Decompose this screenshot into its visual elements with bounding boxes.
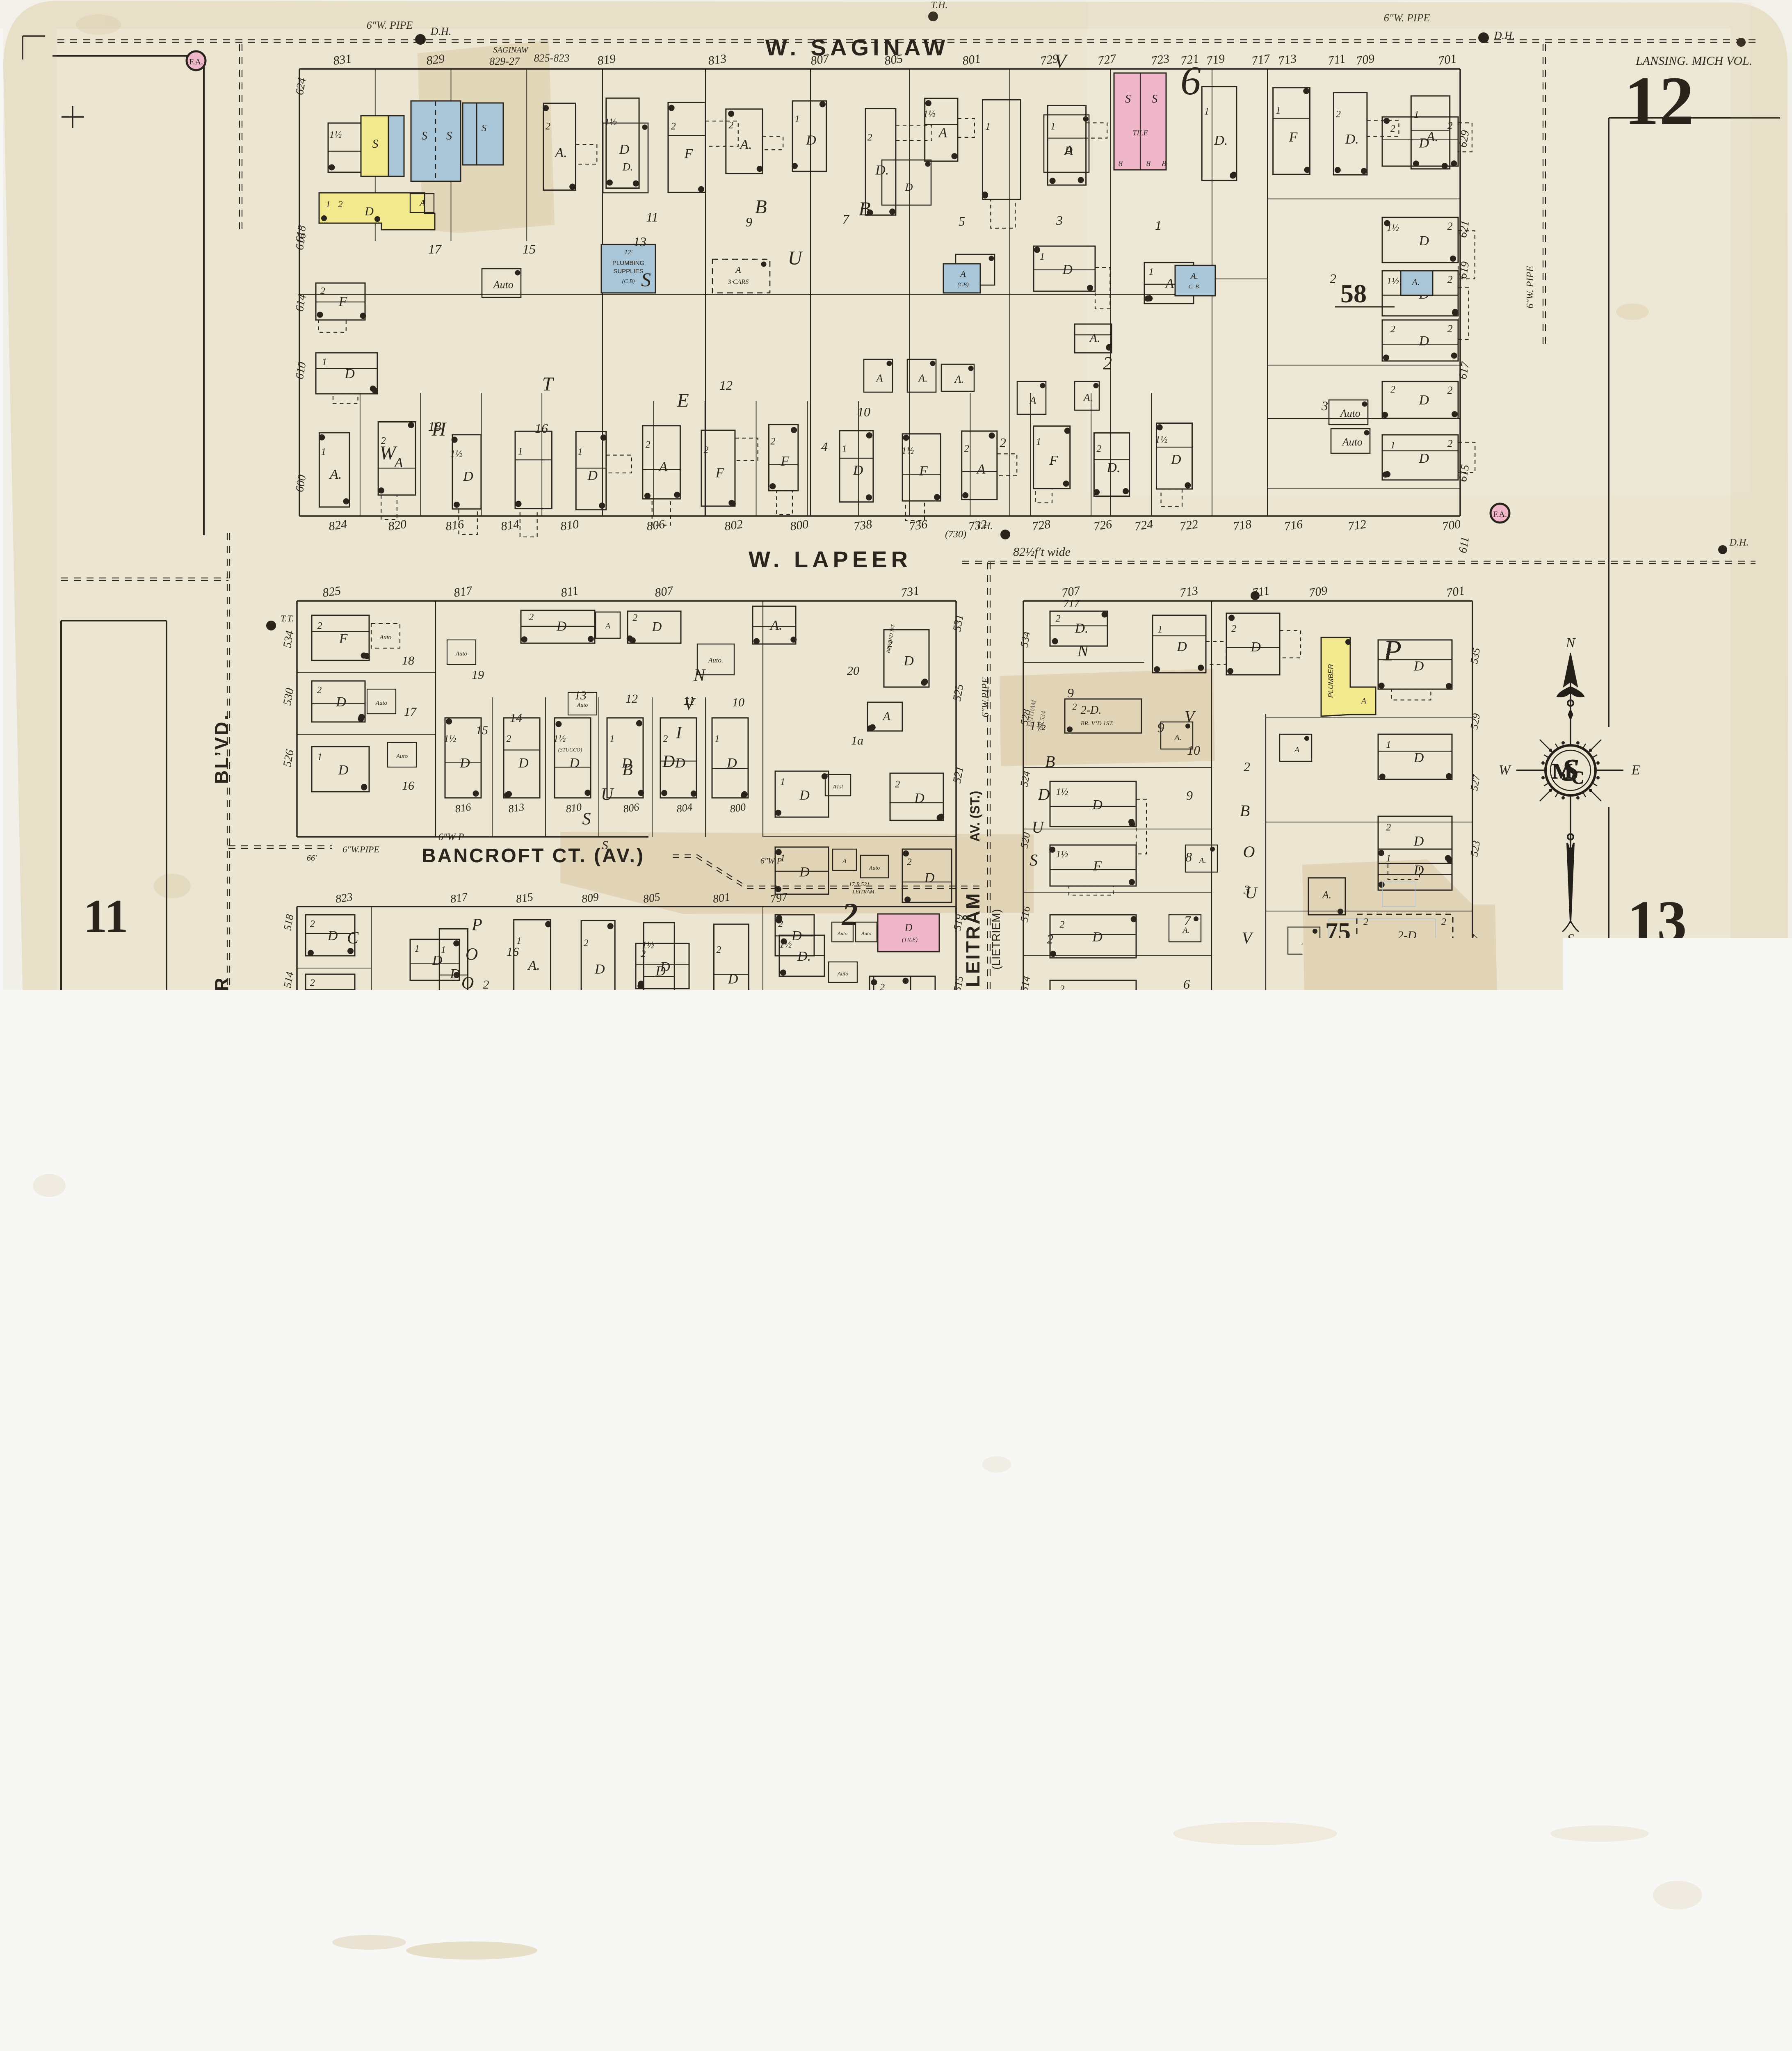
svg-text:2: 2: [1244, 759, 1250, 774]
svg-text:D: D: [1413, 658, 1424, 674]
svg-text:GENESEE ST. SCHOOL: GENESEE ST. SCHOOL: [342, 1391, 481, 1404]
svg-text:1: 1: [1157, 624, 1162, 635]
svg-text:722: 722: [1179, 517, 1199, 533]
svg-text:F: F: [684, 146, 694, 162]
svg-text:D: D: [675, 756, 685, 771]
svg-text:2: 2: [1159, 1932, 1164, 1943]
svg-text:2: 2: [310, 978, 315, 989]
svg-text:Auto: Auto: [493, 279, 514, 291]
svg-text:2: 2: [646, 439, 651, 450]
svg-text:N: N: [1343, 1864, 1356, 1883]
svg-text:N: N: [988, 1681, 1001, 1700]
svg-text:800: 800: [761, 1232, 780, 1247]
svg-text:&: &: [582, 1590, 596, 1609]
svg-text:D: D: [327, 1098, 338, 1113]
svg-text:10: 10: [1187, 743, 1200, 758]
svg-text:6: 6: [1350, 1161, 1357, 1176]
svg-text:D: D: [1413, 1058, 1424, 1073]
svg-text:T: T: [542, 373, 555, 395]
svg-text:2: 2: [1390, 324, 1395, 335]
svg-text:Auto: Auto: [375, 700, 388, 706]
svg-text:28: 28: [356, 1427, 366, 1439]
svg-text:P: P: [471, 916, 482, 934]
svg-text:2: 2: [1316, 1463, 1321, 1474]
svg-text:823: 823: [404, 1352, 423, 1367]
svg-text:D: D: [1418, 393, 1429, 408]
svg-text:2: 2: [895, 779, 900, 790]
svg-text:D: D: [1038, 785, 1050, 804]
svg-text:LEITRAM: LEITRAM: [852, 888, 875, 895]
svg-text:D I: D I: [928, 1413, 952, 1432]
svg-text:D: D: [1413, 1156, 1424, 1171]
svg-text:1½: 1½: [1161, 1521, 1173, 1531]
svg-text:Auto: Auto: [379, 634, 392, 641]
svg-text:2: 2: [1386, 1147, 1391, 1158]
svg-text:813: 813: [507, 801, 525, 815]
svg-text:9: 9: [746, 215, 752, 229]
svg-text:8: 8: [533, 1569, 542, 1588]
svg-text:2: 2: [308, 1772, 313, 1782]
svg-text:L: L: [840, 1550, 849, 1569]
svg-text:2: 2: [632, 612, 637, 623]
svg-text:D: D: [1413, 750, 1424, 765]
svg-text:1: 1: [1028, 1934, 1033, 1945]
svg-text:1: 1: [317, 752, 322, 763]
svg-text:V: V: [954, 1694, 967, 1713]
svg-text:701: 701: [1434, 1352, 1453, 1367]
svg-text:D: D: [569, 756, 580, 771]
svg-text:6″W. PIPE: 6″W. PIPE: [331, 1283, 370, 1293]
svg-text:A1st: A1st: [833, 784, 844, 790]
svg-text:A: A: [1330, 1471, 1340, 1487]
svg-text:2: 2: [1373, 1725, 1378, 1736]
svg-text:35′: 35′: [380, 1427, 392, 1438]
svg-text:A.: A.: [954, 373, 964, 385]
svg-text:A.: A.: [1374, 1464, 1381, 1473]
svg-text:D: D: [1401, 1406, 1409, 1418]
svg-text:D: D: [556, 619, 566, 634]
svg-text:B: B: [1240, 802, 1250, 820]
svg-text:1: 1: [1149, 267, 1154, 277]
svg-text:75: 75: [1325, 918, 1351, 946]
svg-text:P: P: [1383, 634, 1402, 667]
svg-text:2: 2: [1059, 920, 1064, 930]
svg-text:6″W. PIPE: 6″W. PIPE: [313, 2009, 360, 2021]
svg-text:I: I: [760, 1560, 767, 1579]
svg-text:713: 713: [1212, 1352, 1231, 1367]
svg-text:E: E: [925, 1150, 936, 1169]
svg-text:D: D: [1171, 452, 1181, 467]
svg-text:A: A: [792, 1192, 802, 1207]
svg-text:2: 2: [1047, 932, 1053, 946]
svg-text:2: 2: [317, 621, 322, 631]
svg-text:50: 50: [375, 1316, 384, 1326]
svg-text:H: H: [431, 418, 447, 440]
svg-text:2: 2: [1447, 438, 1453, 450]
svg-text:1½: 1½: [491, 1193, 503, 1204]
svg-text:2: 2: [304, 1935, 309, 1946]
svg-text:(STUCCO): (STUCCO): [558, 747, 582, 753]
svg-text:1: 1: [1390, 1847, 1395, 1858]
svg-text:1: 1: [780, 777, 785, 788]
svg-text:728: 728: [1031, 517, 1051, 533]
svg-text:VEN’D: VEN’D: [1165, 1396, 1182, 1402]
svg-text:2: 2: [1056, 614, 1061, 624]
svg-text:11: 11: [330, 1427, 339, 1438]
svg-text:6: 6: [834, 1597, 840, 1611]
svg-text:A.: A.: [1301, 938, 1308, 947]
svg-text:Auto: Auto: [1231, 1172, 1247, 1181]
svg-text:1: 1: [795, 114, 800, 124]
svg-text:( P U B L I C ): ( P U B L I C ): [383, 1407, 436, 1416]
svg-text:1½: 1½: [303, 1828, 315, 1839]
svg-text:1: 1: [372, 1917, 377, 1928]
svg-text:S: S: [482, 123, 486, 134]
svg-text:806: 806: [622, 801, 640, 815]
svg-text:A.: A.: [959, 1955, 972, 1970]
svg-text:D.: D.: [1345, 132, 1359, 147]
svg-text:2: 2: [880, 982, 885, 993]
svg-text:A: A: [876, 372, 883, 384]
svg-text:A: A: [1361, 697, 1367, 706]
svg-text:A: A: [817, 1044, 823, 1053]
svg-text:D: D: [1418, 333, 1429, 349]
svg-text:D: D: [1407, 1627, 1415, 1639]
svg-text:2: 2: [1447, 274, 1453, 285]
svg-text:17: 17: [428, 242, 442, 256]
svg-text:804: 804: [676, 801, 693, 815]
svg-text:2: 2: [1246, 1386, 1251, 1397]
svg-text:2: 2: [649, 1370, 655, 1383]
svg-text:D.: D.: [439, 1201, 453, 1216]
svg-text:2: 2: [483, 978, 489, 991]
svg-text:12: 12: [1624, 62, 1694, 139]
svg-text:1½: 1½: [306, 1035, 319, 1046]
svg-text:T.H.: T.H.: [277, 1231, 293, 1242]
svg-text:1: 1: [911, 1433, 919, 1452]
svg-text:D: D: [1062, 262, 1073, 277]
svg-text:2: 2: [1059, 1107, 1064, 1118]
svg-text:S: S: [422, 130, 427, 142]
svg-text:6″W P: 6″W P: [760, 856, 782, 866]
svg-text:A: A: [530, 1060, 536, 1069]
svg-text:3 CARS: 3 CARS: [914, 1551, 934, 1557]
svg-text:D: D: [902, 994, 913, 1009]
svg-text:2: 2: [1447, 220, 1453, 232]
svg-text:U: U: [788, 247, 804, 269]
svg-text:3-CARS: 3-CARS: [1221, 1074, 1242, 1080]
svg-text:2: 2: [875, 1928, 880, 1938]
svg-text:E: E: [1631, 763, 1640, 778]
svg-text:D: D: [327, 928, 338, 943]
svg-text:F: F: [919, 464, 928, 479]
svg-text:66′: 66′: [307, 854, 317, 863]
svg-text:D.: D.: [820, 1948, 833, 1963]
svg-text:D: D: [336, 694, 346, 710]
svg-text:806: 806: [620, 1756, 635, 1766]
svg-text:12′: 12′: [624, 249, 632, 256]
svg-text:13: 13: [1628, 889, 1687, 955]
svg-text:13: 13: [633, 234, 646, 249]
svg-text:A: A: [464, 1023, 470, 1032]
svg-text:800: 800: [789, 517, 809, 533]
svg-text:A: A: [1013, 1624, 1019, 1633]
svg-text:PLUMBER: PLUMBER: [1327, 664, 1335, 698]
svg-text:A.: A.: [885, 987, 898, 1003]
svg-text:2: 2: [320, 286, 325, 297]
svg-text:D: D: [327, 1044, 338, 1059]
svg-text:1: 1: [1155, 218, 1162, 233]
svg-text:730: 730: [888, 2007, 907, 2022]
svg-text:A: A: [938, 126, 947, 141]
svg-text:D: D: [327, 1147, 338, 1163]
svg-text:715½: 715½: [1172, 1499, 1191, 1508]
svg-text:S: S: [705, 1789, 714, 1808]
svg-text:Auto: Auto: [1065, 1790, 1080, 1798]
svg-text:S: S: [379, 1212, 384, 1222]
svg-text:(CB): (CB): [957, 282, 969, 288]
svg-text:F: F: [667, 1935, 677, 1950]
svg-text:10: 10: [857, 404, 870, 419]
svg-text:G: G: [484, 1584, 496, 1603]
svg-text:D: D: [1413, 863, 1424, 878]
svg-text:F: F: [524, 1942, 534, 1957]
svg-text:D.: D.: [882, 1429, 896, 1444]
svg-text:1: 1: [1210, 1399, 1214, 1410]
svg-text:(VEND): (VEND): [385, 1894, 406, 1901]
svg-text:804: 804: [671, 1232, 690, 1247]
svg-text:WALLS: WALLS: [1367, 1638, 1385, 1644]
svg-text:825-823: 825-823: [534, 52, 570, 64]
svg-text:(TILE BR. FACED): (TILE BR. FACED): [309, 1219, 360, 1226]
svg-text:810: 810: [565, 801, 582, 815]
svg-text:F: F: [387, 1937, 397, 1953]
svg-text:800: 800: [729, 801, 746, 815]
svg-text:2: 2: [1351, 1610, 1356, 1620]
svg-text:2: 2: [1039, 1396, 1044, 1406]
svg-text:S: S: [641, 269, 651, 291]
svg-text:1: 1: [1386, 853, 1391, 864]
svg-text:D: D: [916, 1195, 927, 1210]
svg-text:11: 11: [646, 210, 658, 224]
svg-text:1: 1: [656, 1919, 661, 1930]
svg-text:8: 8: [1185, 850, 1192, 864]
svg-text:D: D: [737, 1201, 748, 1217]
svg-text:819: 819: [596, 52, 616, 68]
svg-text:1 A: 1 A: [1342, 1705, 1361, 1720]
svg-text:A.: A.: [918, 372, 927, 384]
svg-text:736: 736: [749, 2007, 768, 2022]
svg-text:S: S: [446, 130, 452, 142]
svg-text:A.: A.: [1089, 331, 1100, 345]
svg-text:17 R.521: 17 R.521: [849, 882, 870, 888]
svg-text:A.: A.: [329, 467, 342, 482]
svg-text:2: 2: [1311, 1384, 1316, 1394]
svg-text:6″W.PIPE: 6″W.PIPE: [980, 677, 991, 717]
svg-text:2: 2: [728, 120, 733, 131]
svg-text:A: A: [605, 621, 611, 630]
svg-text:2: 2: [512, 1791, 518, 1803]
svg-text:D: D: [1416, 1952, 1427, 1967]
svg-text:E: E: [798, 1556, 809, 1575]
svg-text:820: 820: [387, 517, 407, 533]
svg-text:2: 2: [1073, 701, 1077, 712]
svg-text:816: 816: [445, 517, 465, 533]
svg-text:6″W. PIPE: 6″W. PIPE: [1511, 1915, 1522, 1957]
svg-text:1: 1: [1036, 436, 1041, 447]
svg-text:D: D: [728, 971, 738, 987]
svg-text:B: B: [622, 761, 633, 779]
svg-text:2: 2: [1390, 384, 1395, 395]
svg-text:E: E: [512, 1572, 523, 1591]
svg-text:1½: 1½: [1386, 1780, 1399, 1791]
svg-text:717: 717: [1251, 52, 1272, 68]
svg-text:9: 9: [1186, 788, 1193, 803]
svg-text:2: 2: [1447, 323, 1453, 335]
svg-text:D: D: [660, 959, 670, 975]
svg-text:BL’VD.: BL’VD.: [211, 713, 232, 784]
svg-text:N: N: [1077, 642, 1089, 660]
svg-text:715½R.: 715½R.: [1173, 1601, 1196, 1609]
svg-text:807: 807: [810, 52, 831, 68]
svg-text:700: 700: [1446, 1189, 1465, 1204]
svg-text:802: 802: [724, 1232, 743, 1247]
svg-text:711: 711: [1327, 52, 1346, 68]
svg-text:A: A: [592, 1864, 604, 1883]
svg-text:2: 2: [783, 1181, 788, 1192]
svg-text:D: D: [771, 1715, 782, 1731]
svg-text:A: A: [788, 1423, 798, 1439]
svg-text:714: 714: [1204, 1189, 1223, 1204]
svg-text:801: 801: [712, 891, 731, 906]
svg-text:U: U: [1003, 1421, 1016, 1440]
svg-text:F: F: [1289, 130, 1298, 145]
svg-text:1: 1: [840, 1159, 845, 1169]
svg-text:4: 4: [1244, 989, 1250, 1004]
svg-text:Auto: Auto: [1340, 407, 1361, 419]
svg-text:100: 100: [608, 1316, 622, 1326]
svg-text:8: 8: [1119, 159, 1123, 168]
svg-text:2: 2: [1187, 1712, 1193, 1726]
svg-text:D: D: [307, 1610, 316, 1624]
svg-text:7: 7: [842, 212, 850, 226]
svg-text:16: 16: [507, 945, 519, 959]
svg-text:D: D: [364, 205, 374, 218]
svg-text:2: 2: [867, 132, 872, 143]
svg-text:2: 2: [1386, 822, 1391, 833]
svg-text:Auto: Auto: [1117, 1787, 1130, 1794]
svg-text:S: S: [911, 1093, 919, 1112]
svg-text:S: S: [777, 1761, 786, 1780]
svg-text:15: 15: [609, 994, 621, 1008]
svg-text:F: F: [1399, 1737, 1409, 1752]
svg-text:1: 1: [1390, 440, 1395, 451]
svg-text:O: O: [461, 974, 474, 993]
svg-text:726: 726: [1093, 517, 1113, 533]
svg-text:A.: A.: [1411, 277, 1420, 287]
svg-text:1: 1: [842, 444, 847, 455]
svg-text:D: D: [772, 1792, 783, 1807]
svg-text:720: 720: [1122, 2007, 1141, 2022]
svg-text:736: 736: [908, 517, 928, 533]
svg-text:1: 1: [610, 734, 614, 745]
svg-text:B: B: [1045, 752, 1055, 771]
svg-text:D: D: [459, 756, 470, 771]
svg-text:L: L: [561, 1874, 571, 1893]
svg-text:F: F: [1038, 1951, 1047, 1966]
svg-text:3: 3: [1104, 1145, 1111, 1160]
svg-text:V: V: [963, 1392, 975, 1411]
svg-text:A.: A.: [742, 1947, 754, 1962]
svg-text:731: 731: [900, 584, 920, 600]
svg-text:D: D: [903, 653, 914, 669]
svg-text:712: 712: [1270, 1189, 1289, 1204]
svg-text:801: 801: [961, 52, 982, 68]
svg-text:M: M: [815, 1163, 831, 1181]
svg-text:2: 2: [310, 1139, 315, 1150]
svg-text:O: O: [634, 1813, 646, 1832]
svg-text:15: 15: [476, 724, 488, 737]
svg-text:1: 1: [1386, 740, 1391, 750]
svg-text:7: 7: [1184, 913, 1192, 928]
svg-text:12: 12: [719, 378, 733, 393]
svg-text:1½: 1½: [754, 1781, 767, 1792]
svg-text:18: 18: [402, 654, 414, 667]
svg-text:3: 3: [1321, 398, 1328, 413]
svg-text:A.: A.: [1297, 1102, 1304, 1111]
svg-text:701: 701: [1445, 584, 1466, 600]
svg-text:B: B: [850, 1738, 861, 1756]
svg-text:11: 11: [913, 1072, 925, 1086]
svg-text:2: 2: [1390, 1941, 1395, 1952]
svg-text:2: 2: [317, 685, 322, 696]
svg-text:U: U: [601, 785, 614, 804]
svg-text:N: N: [693, 666, 706, 685]
svg-text:732: 732: [968, 517, 988, 533]
svg-text:82½f′t wide: 82½f′t wide: [1013, 545, 1071, 559]
svg-text:A.: A.: [342, 1887, 354, 1903]
svg-text:1: 1: [711, 1827, 717, 1841]
svg-text:738: 738: [823, 1232, 842, 1247]
svg-text:W: W: [379, 442, 397, 464]
svg-text:S: S: [372, 137, 379, 151]
svg-text:711: 711: [1251, 584, 1270, 600]
svg-text:2: 2: [1072, 1843, 1078, 1857]
svg-text:1½: 1½: [1155, 435, 1168, 445]
svg-text:2: 2: [1096, 444, 1101, 455]
svg-text:D: D: [454, 1594, 467, 1613]
svg-text:A.: A.: [1228, 1935, 1241, 1951]
svg-text:A: A: [1294, 745, 1300, 754]
svg-text:2: 2: [1390, 1687, 1395, 1698]
svg-text:FACED): FACED): [1397, 1428, 1415, 1434]
svg-text:F: F: [671, 1188, 681, 1203]
svg-text:A: A: [842, 858, 847, 865]
svg-text:825: 825: [335, 1352, 354, 1367]
svg-text:2: 2: [546, 121, 550, 132]
svg-text:2: 2: [299, 1197, 304, 1208]
svg-text:A.: A.: [1326, 1826, 1339, 1841]
svg-text:831: 831: [332, 52, 352, 68]
svg-text:2: 2: [964, 443, 969, 454]
svg-text:GENESEE: GENESEE: [747, 1296, 873, 1320]
svg-text:2-D: 2-D: [1397, 929, 1417, 942]
svg-text:U: U: [1245, 884, 1258, 902]
svg-text:V: V: [684, 695, 696, 714]
svg-text:R: R: [1350, 1511, 1361, 1530]
svg-text:D: D: [905, 181, 913, 193]
svg-text:11: 11: [84, 890, 128, 942]
